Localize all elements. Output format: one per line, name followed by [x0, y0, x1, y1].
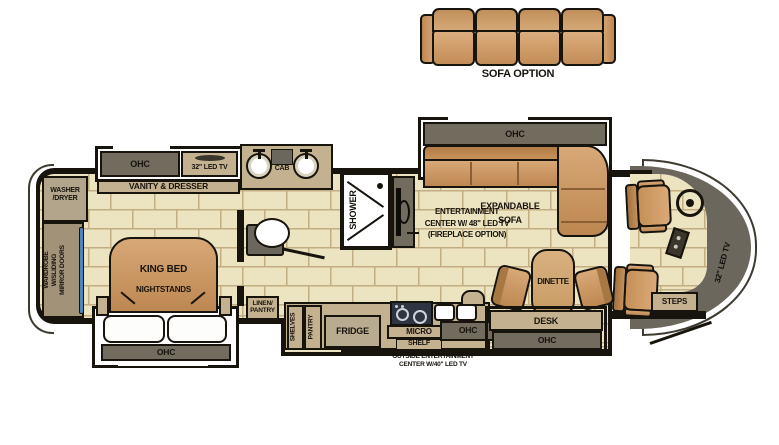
- bath-wall-post: [237, 286, 244, 306]
- mirror-strip: [79, 227, 84, 314]
- burner-icon: [413, 310, 427, 324]
- slide-notch: [113, 146, 170, 149]
- cushion: [475, 30, 518, 66]
- cushion: [561, 30, 604, 66]
- faucet-icon: [258, 149, 261, 159]
- bath-wall: [237, 210, 244, 262]
- cushion: [518, 8, 561, 32]
- driver-seat: [625, 179, 676, 234]
- bedroom-ohc-label: OHC: [102, 159, 178, 170]
- cushion: [432, 8, 475, 32]
- steps: STEPS: [651, 292, 698, 312]
- wardrobe-label: WARDROBE W/SLIDING MIRROR DOORS: [43, 224, 83, 316]
- linen-pantry-cabinet: LINEN/ PANTRY: [246, 296, 279, 320]
- cooktop: [390, 301, 433, 326]
- steps-label: STEPS: [653, 297, 696, 307]
- expandable-sofa-seat: [423, 159, 570, 188]
- entertainment-center: [392, 176, 415, 248]
- washer-dryer-cabinet: WASHER /DRYER: [42, 176, 88, 222]
- vanity-sink-counter: CAB: [240, 144, 333, 190]
- tv-lens-icon: [398, 200, 410, 224]
- cushion: [475, 8, 518, 32]
- desk-ohc-cabinet: OHC: [492, 331, 602, 350]
- expandable-sofa-label: EXPANDABLE SOFA: [462, 200, 558, 228]
- sofa-ohc-cabinet: OHC: [423, 122, 607, 146]
- slide-notch: [118, 363, 208, 366]
- toilet-bowl: [254, 218, 290, 248]
- shelf-label: SHELF: [397, 340, 441, 348]
- seat-cushion: [636, 184, 672, 228]
- desk-label: DESK: [491, 316, 601, 327]
- kitchen-sink-left: [434, 304, 455, 321]
- pillow-left: [103, 315, 165, 343]
- burner-icon: [396, 308, 409, 321]
- bed-ohc-label: OHC: [103, 347, 229, 357]
- sofa-option-back-cushions: [432, 8, 604, 32]
- fridge: FRIDGE: [324, 315, 381, 348]
- fridge-label: FRIDGE: [326, 326, 379, 337]
- sofa-ohc-label: OHC: [425, 129, 605, 140]
- sofa-option-figure: [420, 8, 616, 66]
- nightstand-right: [219, 296, 232, 316]
- knob-icon: [401, 305, 404, 308]
- pantry-label: PANTRY: [308, 306, 320, 349]
- slide-notch: [448, 117, 528, 120]
- showerhead-icon: [377, 183, 383, 189]
- cushion: [518, 30, 561, 66]
- steering-hub: [686, 199, 694, 207]
- cushion-divider: [561, 188, 605, 190]
- cab-cabinet: [271, 149, 293, 165]
- bedroom-tv-cabinet: 32" LED TV: [181, 151, 238, 177]
- cushion-divider: [561, 221, 607, 223]
- rv-floorplan: SOFA OPTION WASHER /DRYER WARDROBE W/SLI…: [0, 0, 779, 445]
- dinette-label: DINETTE: [533, 277, 573, 287]
- cushion-divider: [517, 162, 519, 185]
- shower-label: SHOWER: [348, 174, 360, 246]
- cushion: [432, 30, 475, 66]
- king-bed-label: KING BED: [111, 264, 216, 276]
- linen-pantry-label: LINEN/ PANTRY: [248, 300, 277, 315]
- expandable-sofa-chaise: [557, 145, 609, 237]
- knob-icon: [395, 305, 398, 308]
- bedroom-ohc-cabinet: OHC: [100, 151, 180, 177]
- cushion: [561, 8, 604, 32]
- washer-dryer-label: WASHER /DRYER: [44, 187, 86, 204]
- tv-icon: [195, 155, 225, 161]
- outside-entertainment-label: OUTSIDE ENTERTAINMENT CENTER W/40" LED T…: [385, 353, 481, 369]
- desk: DESK: [489, 310, 603, 331]
- nightstand-left: [96, 296, 109, 316]
- cushion-divider: [470, 162, 472, 185]
- steering-wheel: [676, 189, 704, 217]
- sofa-option-seat-cushions: [432, 30, 604, 66]
- bed-ohc-cabinet: OHC: [101, 344, 231, 361]
- sofa-option-label: SOFA OPTION: [440, 68, 596, 81]
- faucet-icon: [305, 149, 308, 159]
- desk-ohc-label: OHC: [494, 335, 600, 345]
- console-dot: [673, 244, 678, 249]
- bedroom-tv-label: 32" LED TV: [183, 164, 236, 172]
- vanity-dresser-label: VANITY & DRESSER: [100, 181, 237, 191]
- kitchen-sink-right: [456, 304, 477, 321]
- shelves-label: SHELVES: [290, 306, 302, 349]
- king-bed: KING BED NIGHTSTANDS: [109, 237, 218, 313]
- pillow-right: [167, 315, 227, 343]
- console-dot: [676, 236, 681, 241]
- shelf-cabinet: SHELF: [396, 339, 442, 350]
